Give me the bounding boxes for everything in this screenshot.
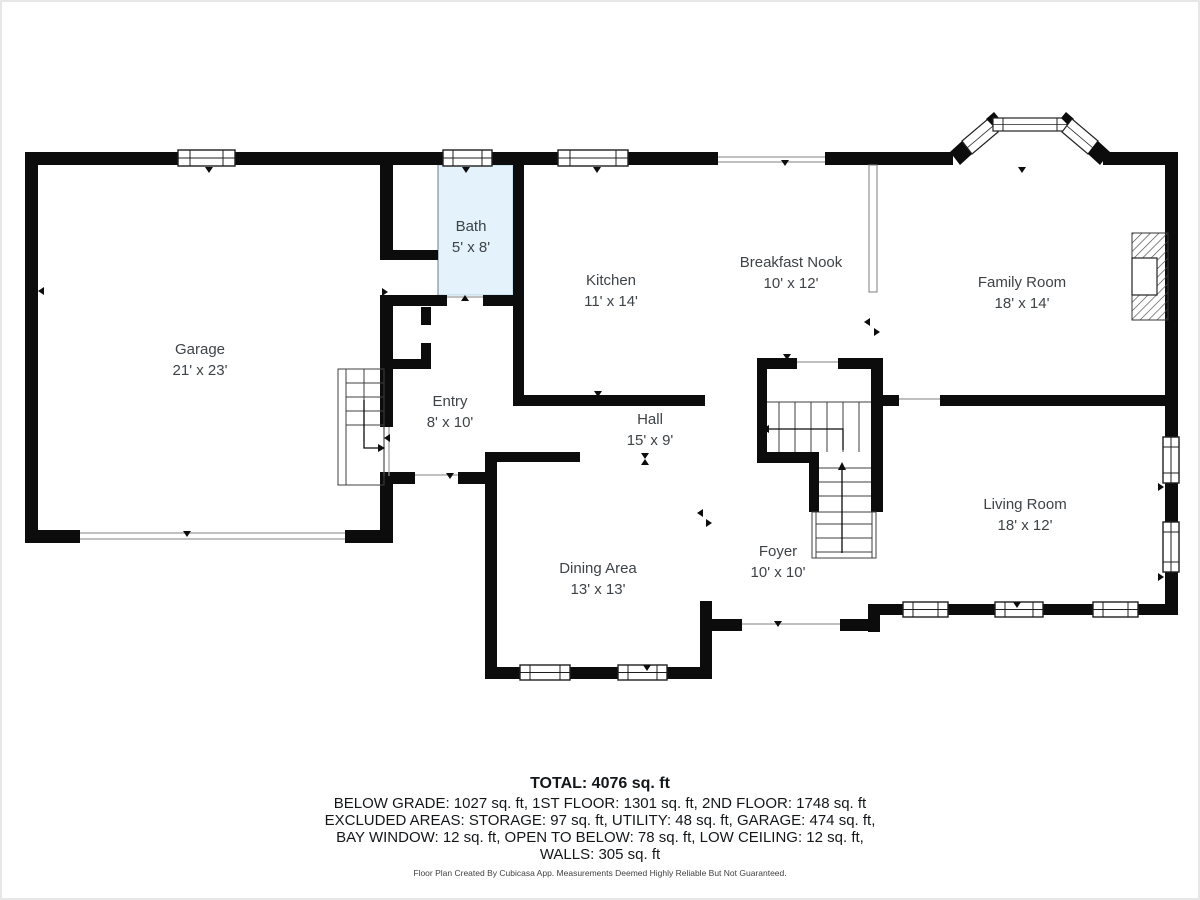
total-area: TOTAL: 4076 sq. ft — [0, 775, 1200, 792]
summary-line: BAY WINDOW: 12 sq. ft, OPEN TO BELOW: 78… — [0, 829, 1200, 846]
room-dims: 10' x 10' — [751, 562, 806, 583]
room-dims: 5' x 8' — [452, 237, 490, 258]
floor-plan-canvas: Garage 21' x 23' Bath 5' x 8' Kitchen 11… — [0, 0, 1200, 900]
bay-window — [950, 112, 1110, 165]
room-dims: 15' x 9' — [627, 430, 674, 451]
room-label-entry: Entry 8' x 10' — [427, 391, 474, 433]
room-label-foyer: Foyer 10' x 10' — [751, 541, 806, 583]
room-name: Dining Area — [559, 558, 637, 579]
footer-disclaimer: Floor Plan Created By Cubicasa App. Meas… — [0, 868, 1200, 878]
room-name: Garage — [173, 339, 228, 360]
room-label-family-room: Family Room 18' x 14' — [978, 272, 1066, 314]
room-dims: 18' x 14' — [978, 293, 1066, 314]
room-dims: 21' x 23' — [173, 360, 228, 381]
room-dims: 13' x 13' — [559, 579, 637, 600]
room-label-dining-area: Dining Area 13' x 13' — [559, 558, 637, 600]
room-dims: 11' x 14' — [584, 291, 638, 312]
room-dims: 10' x 12' — [740, 273, 843, 294]
room-name: Breakfast Nook — [740, 252, 843, 273]
room-label-breakfast-nook: Breakfast Nook 10' x 12' — [740, 252, 843, 294]
room-name: Hall — [627, 409, 674, 430]
room-label-hall: Hall 15' x 9' — [627, 409, 674, 451]
room-name: Living Room — [983, 494, 1066, 515]
fireplace — [1132, 233, 1168, 320]
room-label-bath: Bath 5' x 8' — [452, 216, 490, 258]
room-name: Entry — [427, 391, 474, 412]
room-label-living-room: Living Room 18' x 12' — [983, 494, 1066, 536]
room-name: Kitchen — [584, 270, 638, 291]
summary-line: BELOW GRADE: 1027 sq. ft, 1ST FLOOR: 130… — [0, 795, 1200, 812]
summary-line: WALLS: 305 sq. ft — [0, 846, 1200, 863]
room-label-garage: Garage 21' x 23' — [173, 339, 228, 381]
room-label-kitchen: Kitchen 11' x 14' — [584, 270, 638, 312]
room-name: Foyer — [751, 541, 806, 562]
room-dims: 18' x 12' — [983, 515, 1066, 536]
room-name: Family Room — [978, 272, 1066, 293]
garage-stairs — [338, 369, 385, 485]
area-summary: TOTAL: 4076 sq. ft BELOW GRADE: 1027 sq.… — [0, 775, 1200, 863]
floor-plan-drawing — [0, 0, 1200, 900]
summary-line: EXCLUDED AREAS: STORAGE: 97 sq. ft, UTIL… — [0, 812, 1200, 829]
half-wall-divider — [869, 165, 877, 292]
windows — [178, 150, 1179, 680]
room-name: Bath — [452, 216, 490, 237]
room-dims: 8' x 10' — [427, 412, 474, 433]
